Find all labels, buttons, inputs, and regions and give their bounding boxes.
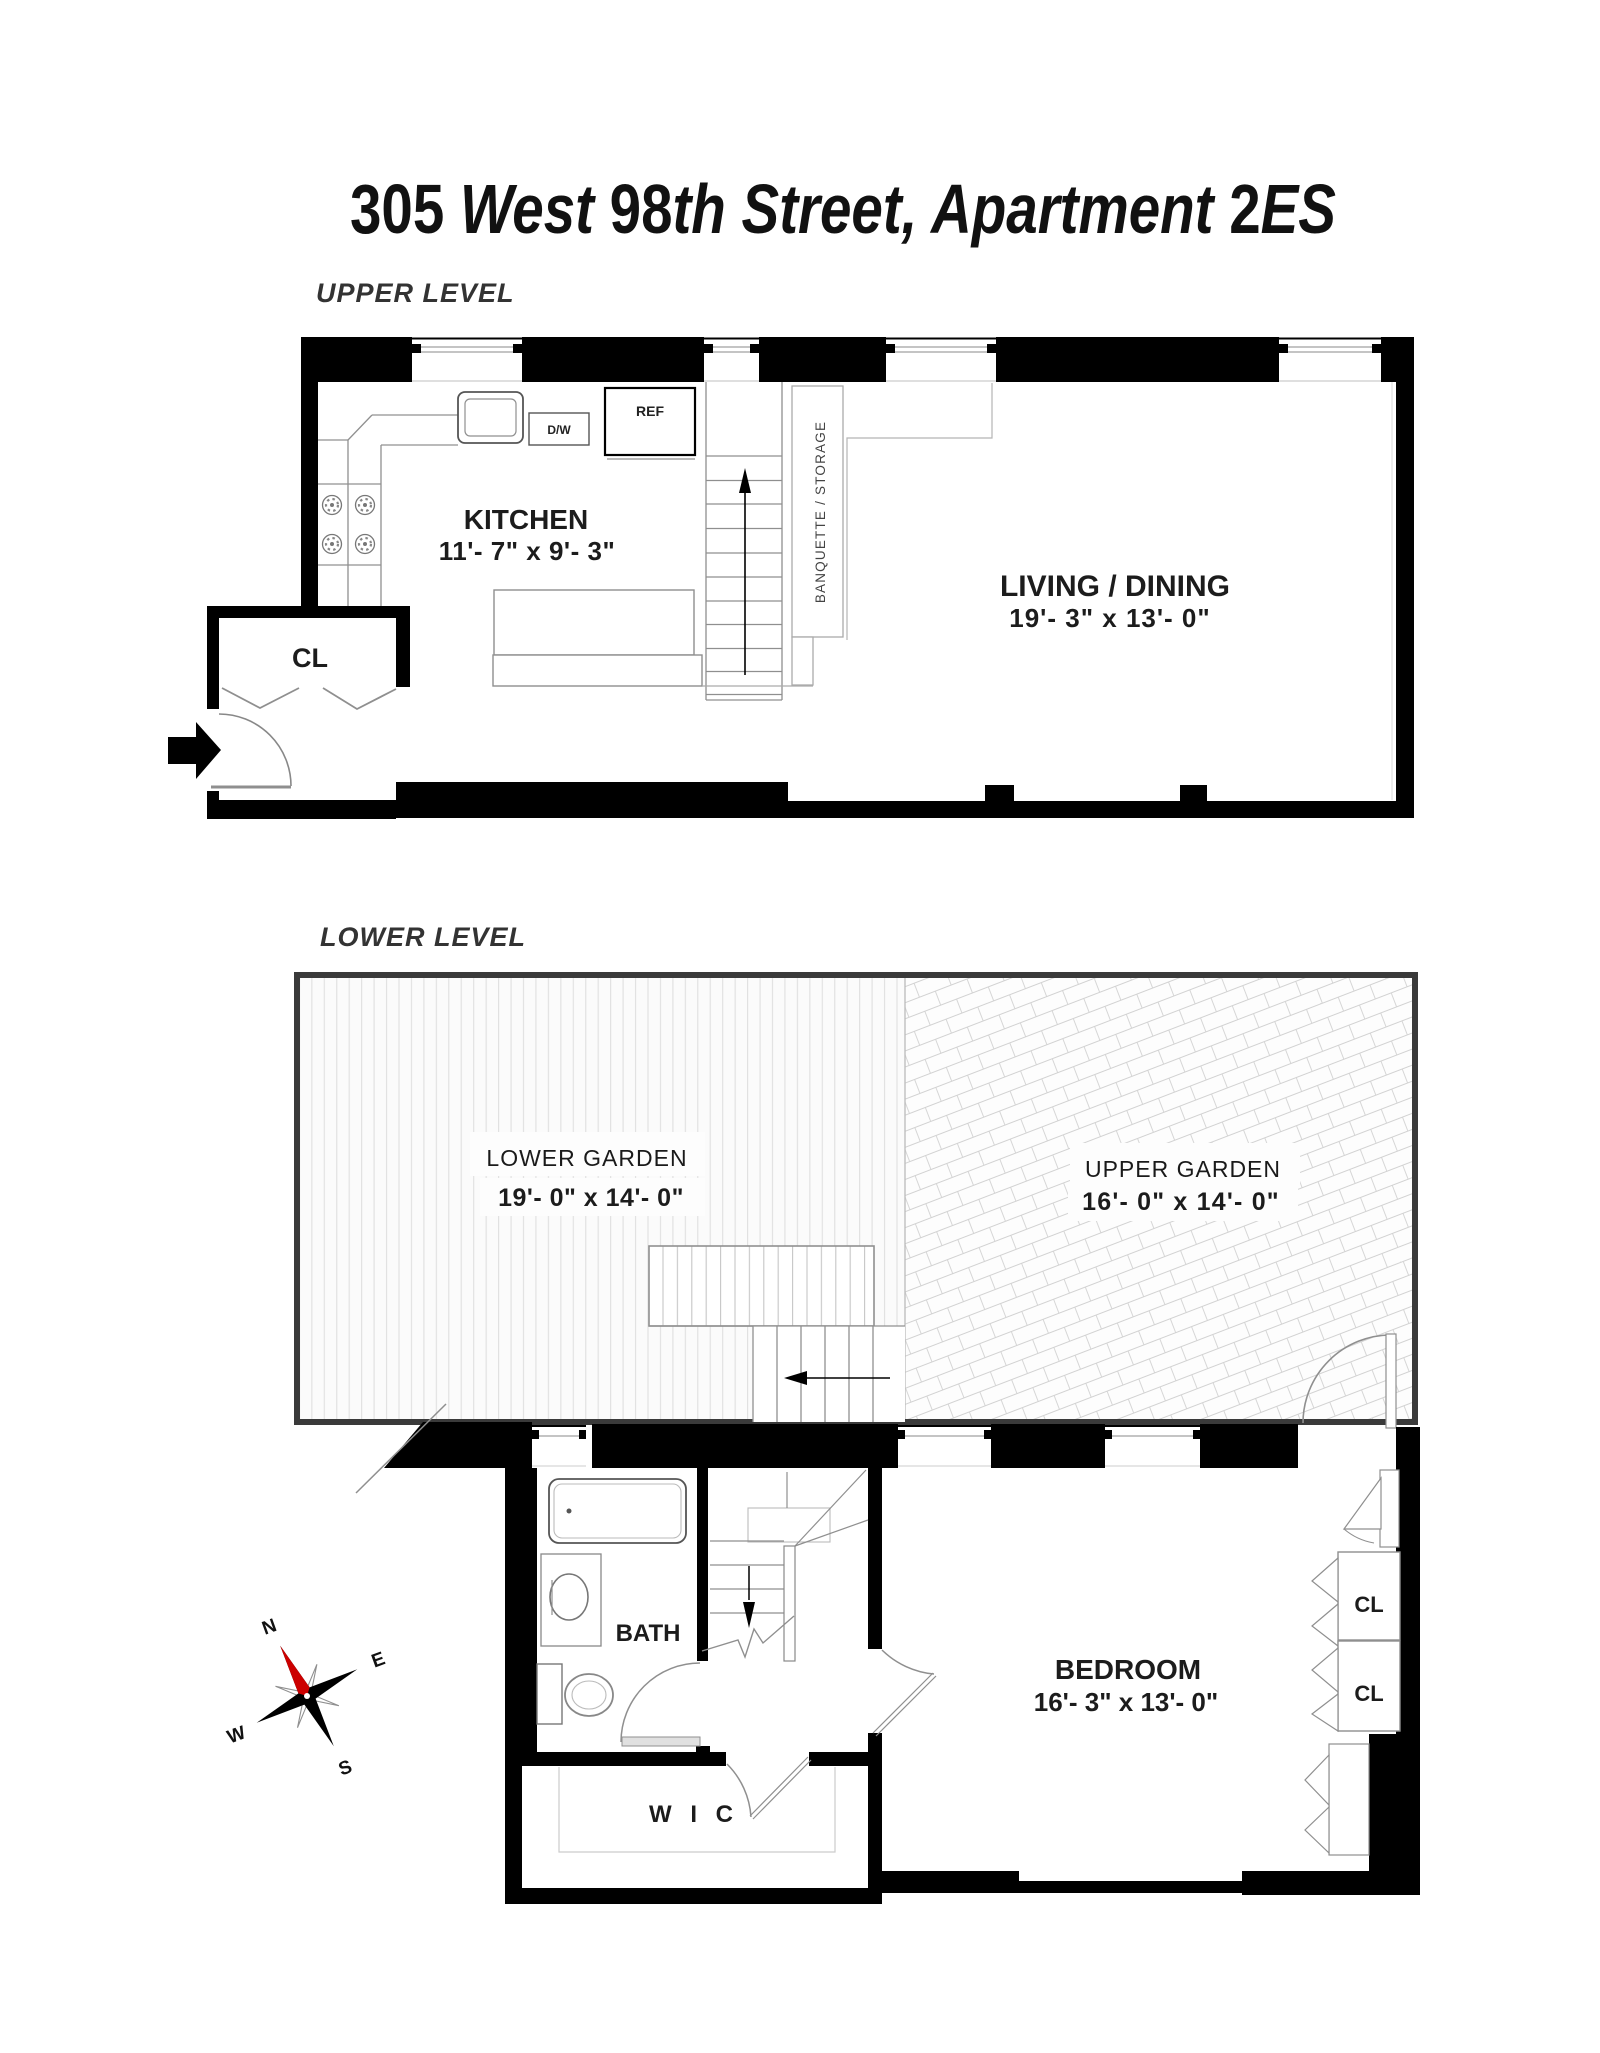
svg-text:REF: REF xyxy=(636,403,664,419)
svg-text:UPPER LEVEL: UPPER LEVEL xyxy=(316,278,515,308)
svg-text:W I C: W I C xyxy=(649,1801,739,1828)
svg-text:CL: CL xyxy=(1354,1681,1383,1706)
svg-text:CL: CL xyxy=(292,643,328,673)
svg-text:19'- 0" x 14'- 0": 19'- 0" x 14'- 0" xyxy=(498,1184,684,1212)
svg-text:16'- 3" x 13'- 0": 16'- 3" x 13'- 0" xyxy=(1034,1687,1218,1717)
svg-text:11'- 7" x 9'- 3": 11'- 7" x 9'- 3" xyxy=(439,536,616,566)
svg-text:UPPER GARDEN: UPPER GARDEN xyxy=(1085,1156,1281,1182)
svg-text:KITCHEN: KITCHEN xyxy=(464,504,588,535)
svg-text:BANQUETTE / STORAGE: BANQUETTE / STORAGE xyxy=(813,421,828,603)
svg-text:CL: CL xyxy=(1354,1592,1383,1617)
svg-text:BATH: BATH xyxy=(616,1620,681,1647)
svg-text:LOWER GARDEN: LOWER GARDEN xyxy=(486,1145,687,1171)
svg-text:LIVING / DINING: LIVING / DINING xyxy=(1000,570,1230,603)
svg-text:19'- 3" x 13'- 0": 19'- 3" x 13'- 0" xyxy=(1009,603,1210,633)
svg-text:305 West 98th Street, Apartmen: 305 West 98th Street, Apartment 2ES xyxy=(350,170,1336,248)
svg-text:BEDROOM: BEDROOM xyxy=(1055,1654,1201,1685)
svg-text:LOWER LEVEL: LOWER LEVEL xyxy=(320,922,526,952)
svg-text:D/W: D/W xyxy=(547,423,571,437)
svg-text:16'- 0" x 14'- 0": 16'- 0" x 14'- 0" xyxy=(1082,1188,1280,1216)
